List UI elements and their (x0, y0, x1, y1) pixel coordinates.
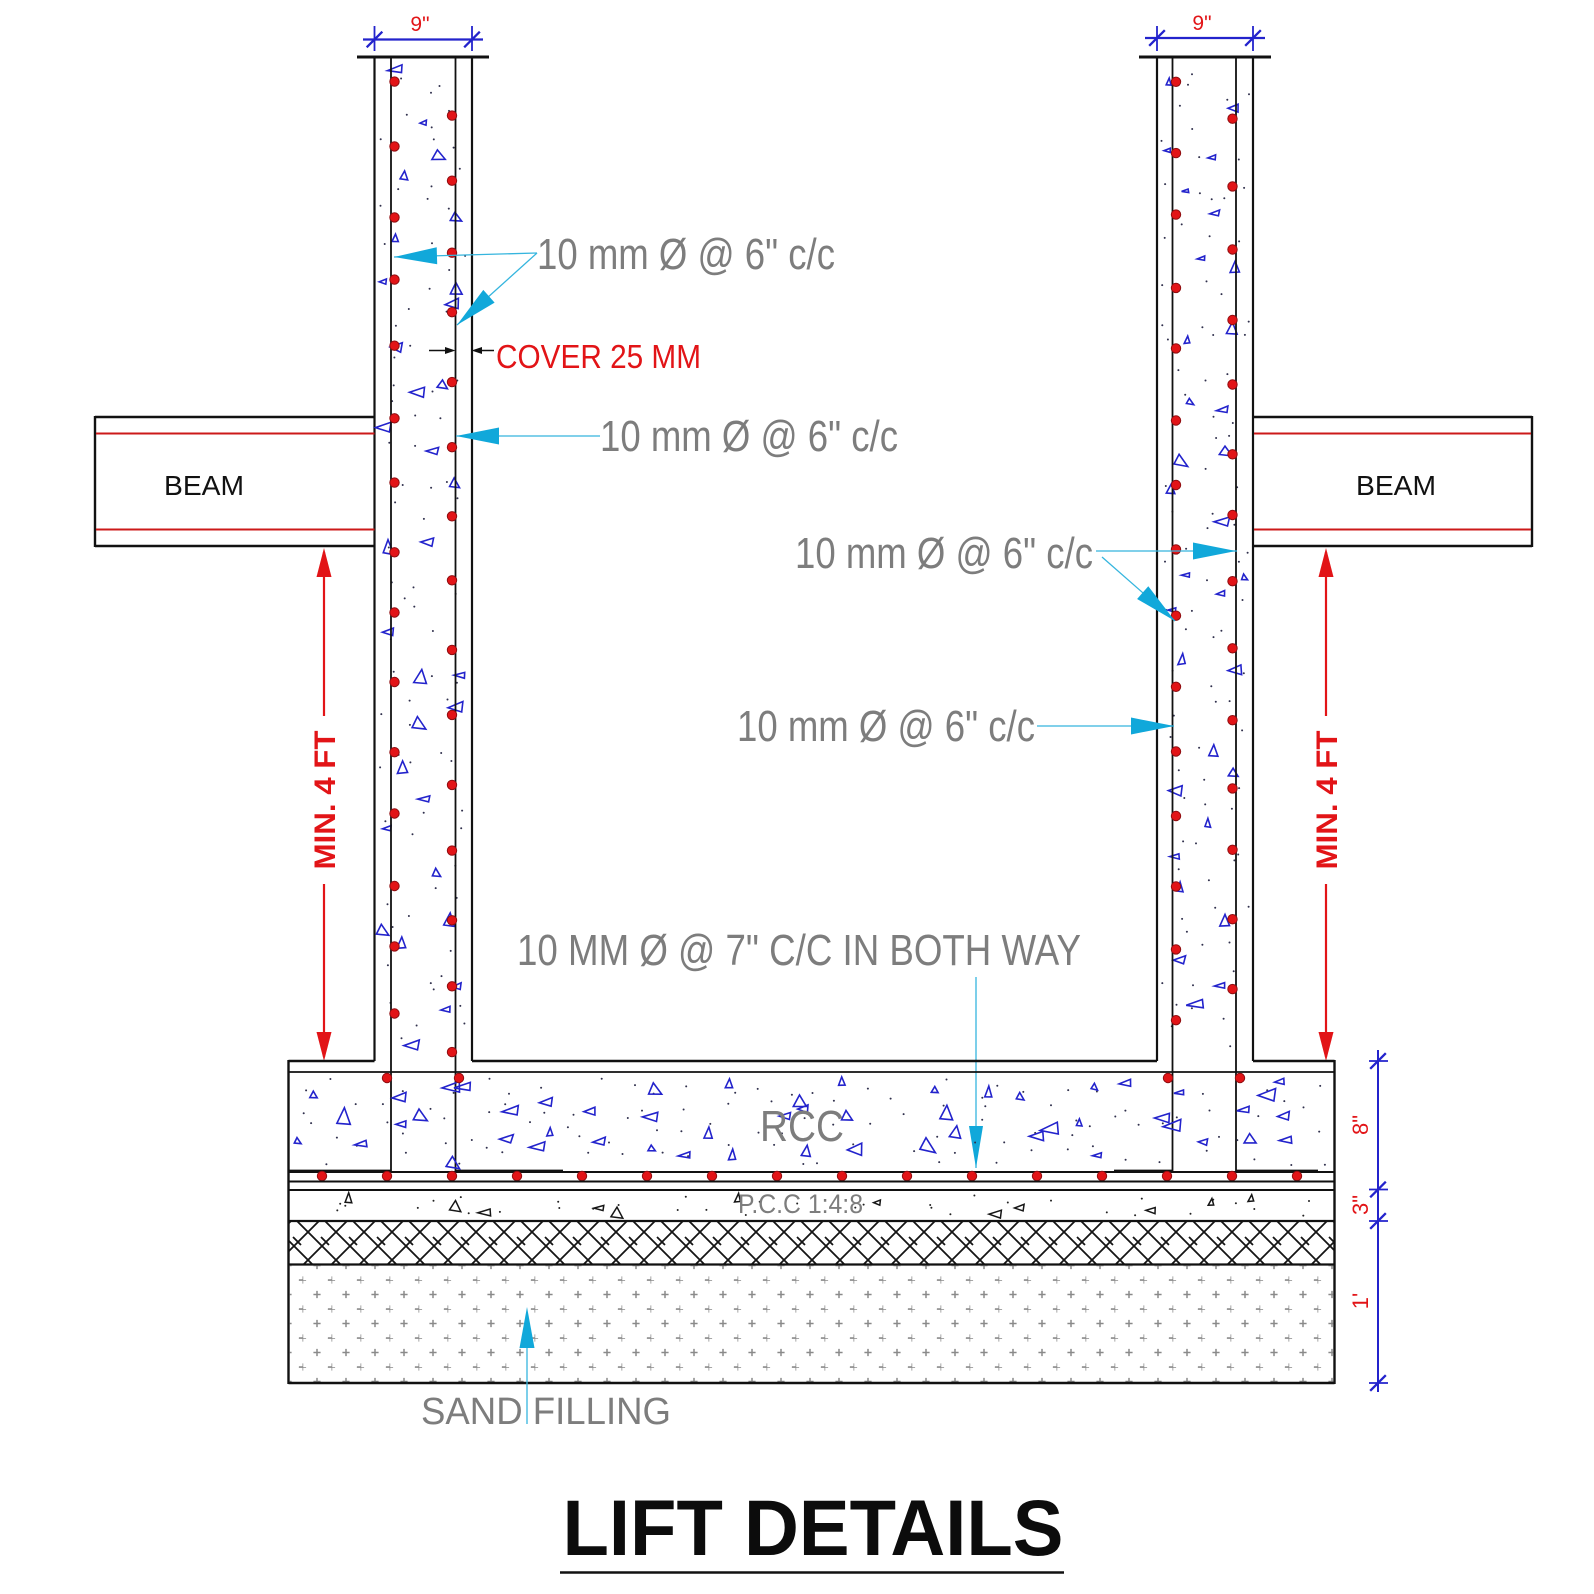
svg-text:9": 9" (410, 13, 429, 36)
svg-text:MIN. 4 FT: MIN. 4 FT (1311, 731, 1344, 870)
svg-text:BEAM: BEAM (164, 470, 244, 501)
svg-text:1': 1' (1348, 1293, 1373, 1309)
svg-text:SAND FILLING: SAND FILLING (421, 1391, 671, 1433)
svg-text:10 MM Ø @ 7" C/C IN BOTH WAY: 10 MM Ø @ 7" C/C IN BOTH WAY (517, 926, 1081, 975)
svg-text:9": 9" (1192, 12, 1211, 35)
svg-text:P.C.C 1:4:8: P.C.C 1:4:8 (738, 1189, 863, 1219)
svg-text:10 mm Ø @ 6" c/c: 10 mm Ø @ 6" c/c (795, 529, 1093, 578)
svg-text:10 mm Ø @ 6" c/c: 10 mm Ø @ 6" c/c (737, 702, 1035, 751)
svg-text:COVER 25 MM: COVER 25 MM (496, 338, 701, 375)
svg-text:3": 3" (1348, 1195, 1373, 1215)
svg-text:RCC: RCC (760, 1102, 844, 1151)
svg-text:8": 8" (1348, 1115, 1373, 1135)
svg-text:MIN. 4 FT: MIN. 4 FT (309, 731, 342, 870)
svg-text:10 mm Ø @ 6" c/c: 10 mm Ø @ 6" c/c (537, 230, 835, 279)
svg-text:10 mm Ø @ 6" c/c: 10 mm Ø @ 6" c/c (600, 412, 898, 461)
svg-text:BEAM: BEAM (1356, 470, 1436, 501)
svg-text:LIFT DETAILS: LIFT DETAILS (563, 1483, 1064, 1572)
